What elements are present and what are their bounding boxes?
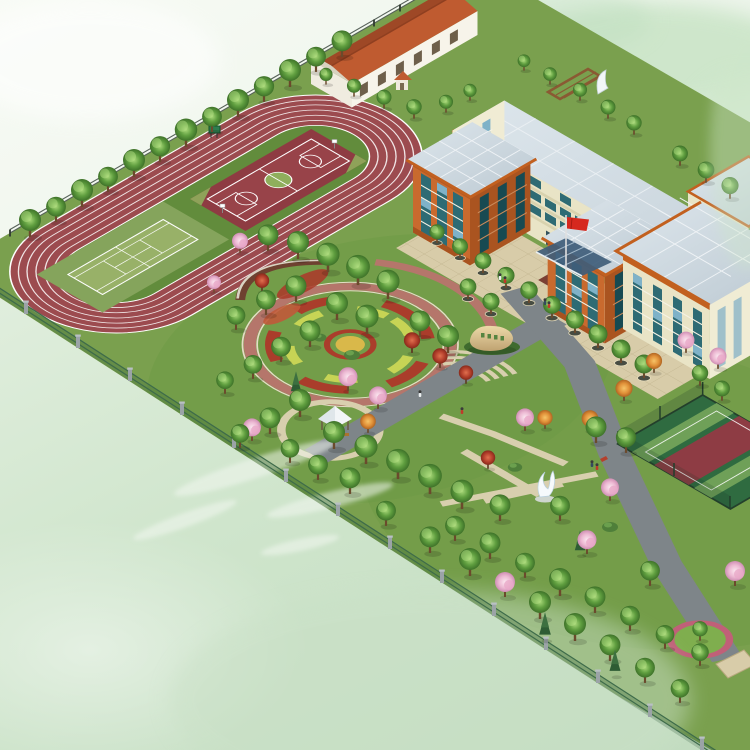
campus-rendering xyxy=(0,0,750,750)
stone-boulder xyxy=(470,326,513,351)
planter-tree xyxy=(520,281,537,305)
person xyxy=(499,273,502,280)
planter-tree xyxy=(429,224,444,245)
person xyxy=(591,460,594,467)
planter-tree xyxy=(482,293,499,317)
shrub xyxy=(602,522,618,532)
planter-tree xyxy=(566,310,584,335)
person xyxy=(419,390,422,397)
campus-scene xyxy=(0,0,750,750)
shrub xyxy=(344,350,360,360)
planter-tree xyxy=(460,278,477,301)
backboard xyxy=(220,204,225,208)
person xyxy=(461,407,464,414)
person xyxy=(504,276,507,283)
planter-tree xyxy=(452,238,468,260)
person xyxy=(548,301,551,308)
shrub xyxy=(508,463,522,472)
person xyxy=(596,463,599,470)
person xyxy=(544,298,547,305)
planter-tree xyxy=(475,252,492,275)
aux-door xyxy=(400,83,404,90)
window-strip xyxy=(734,297,742,360)
backboard xyxy=(332,140,337,144)
